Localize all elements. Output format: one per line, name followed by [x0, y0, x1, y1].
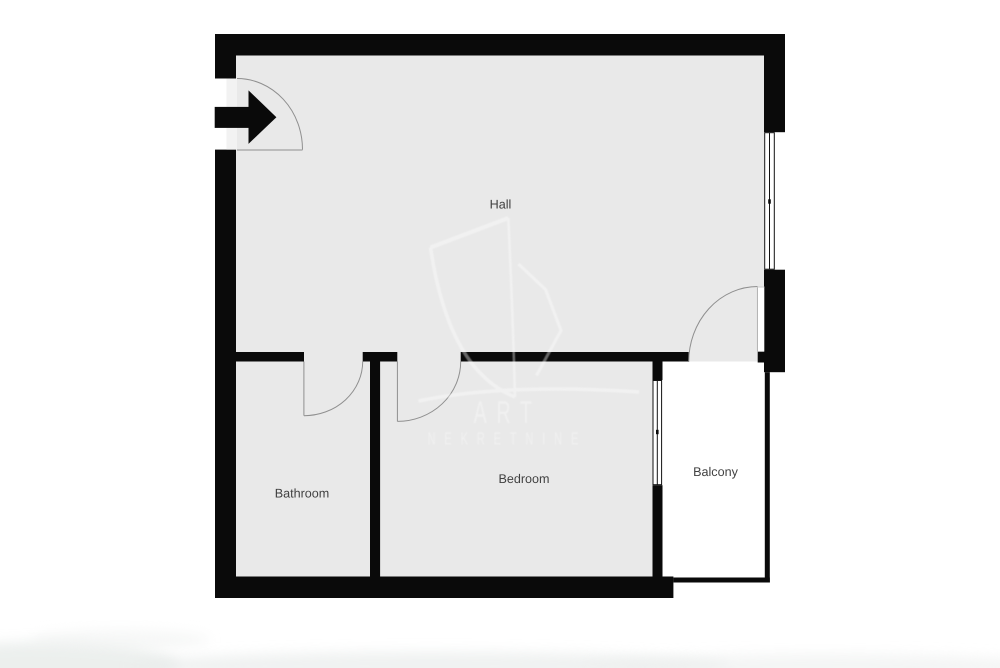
svg-text:Bathroom: Bathroom	[275, 486, 330, 500]
svg-text:Hall: Hall	[490, 197, 512, 211]
svg-text:Bedroom: Bedroom	[498, 472, 549, 486]
svg-text:ART: ART	[474, 394, 542, 430]
svg-text:Balcony: Balcony	[693, 465, 739, 479]
svg-text:NEKRETNINE: NEKRETNINE	[428, 429, 588, 449]
